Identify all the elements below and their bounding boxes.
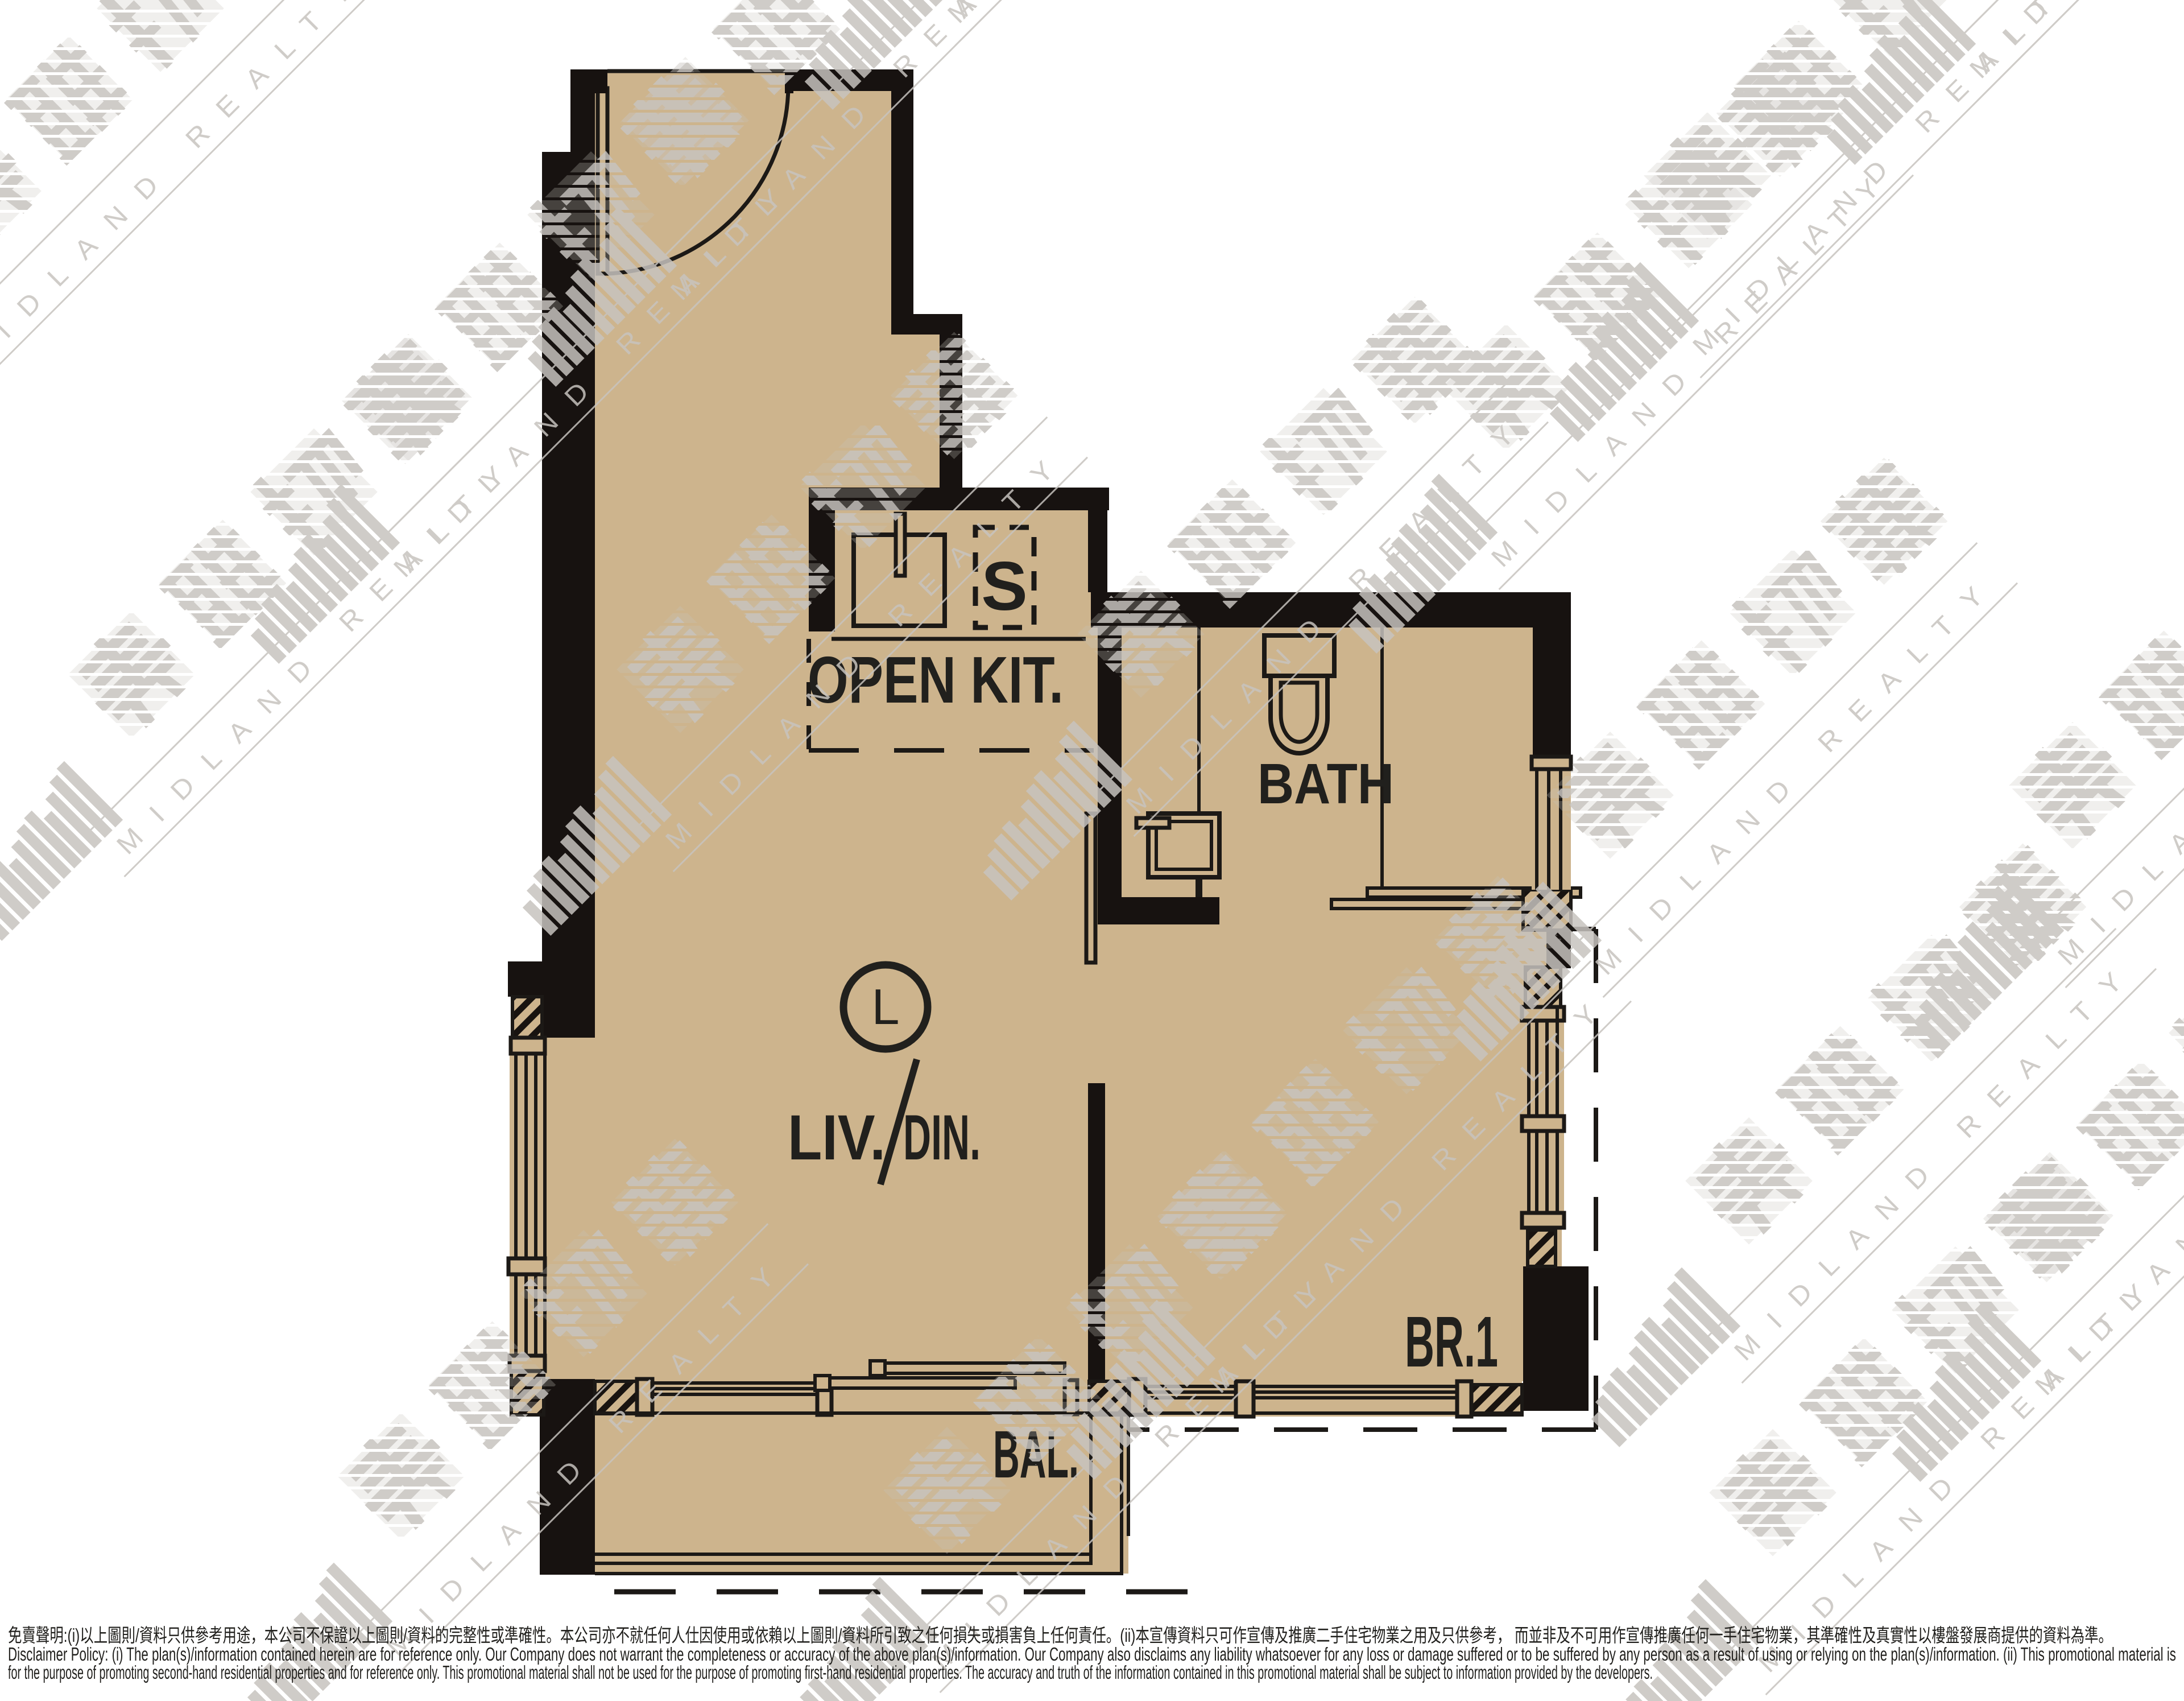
svg-text:MIDLAND REALTY: MIDLAND REALTY	[941, 0, 1356, 29]
svg-text:MIDLAND REALTY: MIDLAND REALTY	[1963, 0, 2184, 84]
svg-text:LIV.: LIV.	[788, 1102, 886, 1173]
svg-text:BR.1: BR.1	[1405, 1302, 1498, 1382]
svg-text:for the purpose of promoting s: for the purpose of promoting second-hand…	[8, 1662, 1653, 1683]
svg-text:BATH: BATH	[1258, 752, 1394, 816]
svg-text:L: L	[872, 979, 900, 1035]
svg-text:S: S	[981, 547, 1027, 625]
svg-text:DIN.: DIN.	[903, 1102, 981, 1173]
svg-text:免賣聲明:(i)以上圖則/資料只供參考用途，本公司不保證以上: 免賣聲明:(i)以上圖則/資料只供參考用途，本公司不保證以上圖則/資料的完整性或…	[8, 1625, 2112, 1646]
